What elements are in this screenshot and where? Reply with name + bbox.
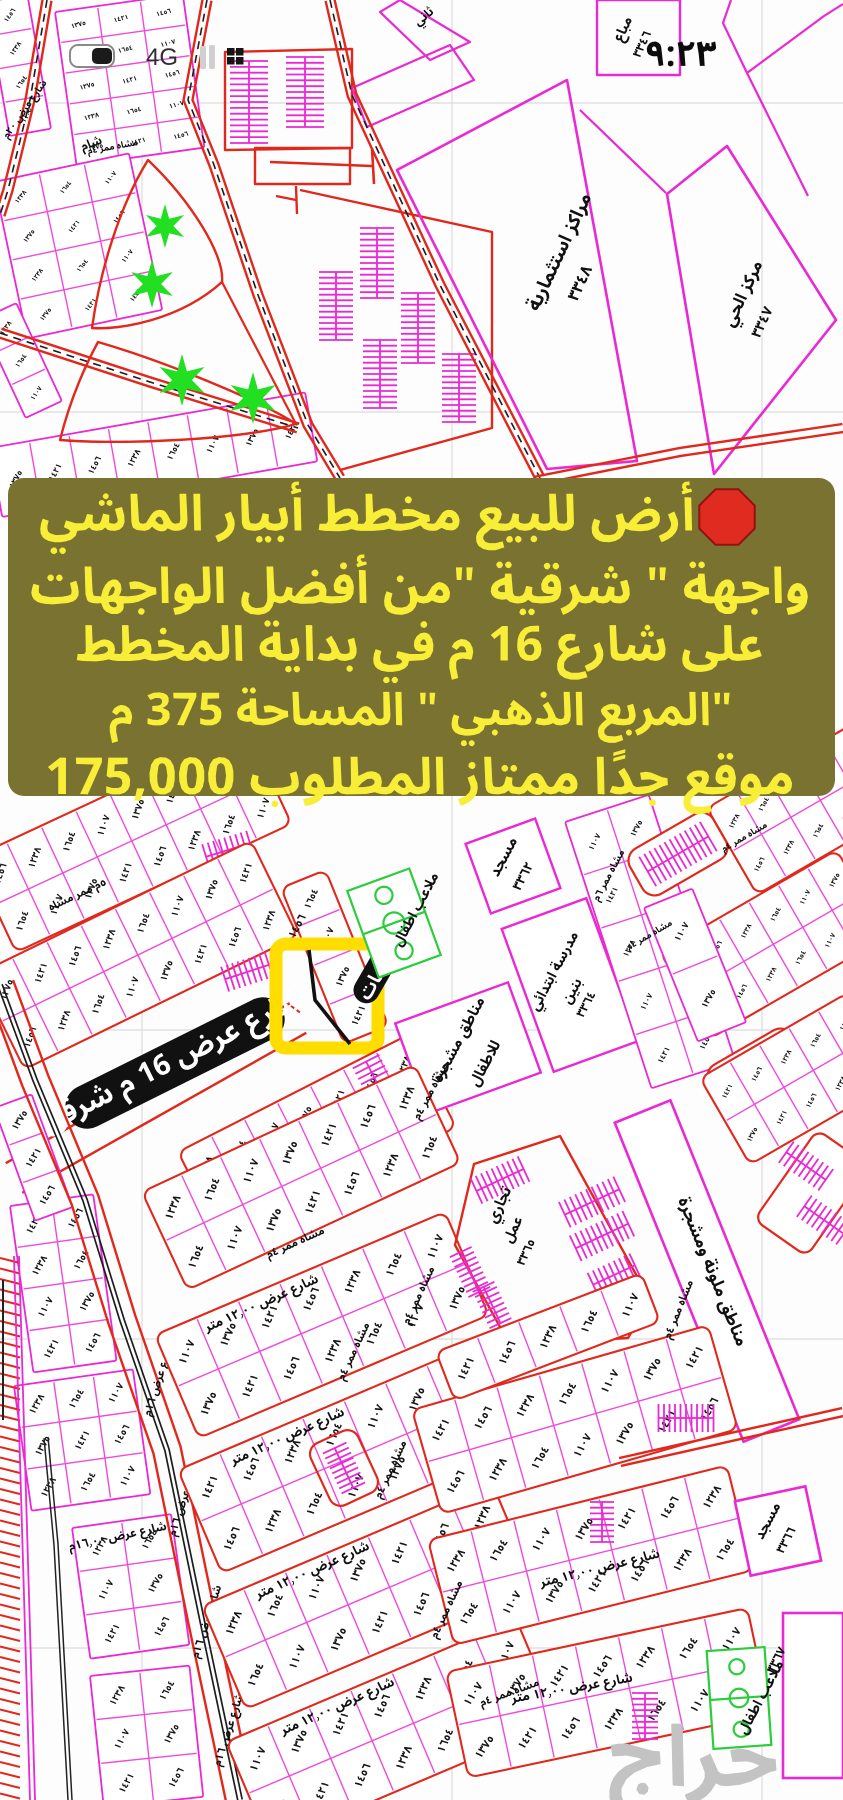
svg-text:4G: 4G — [146, 44, 178, 71]
